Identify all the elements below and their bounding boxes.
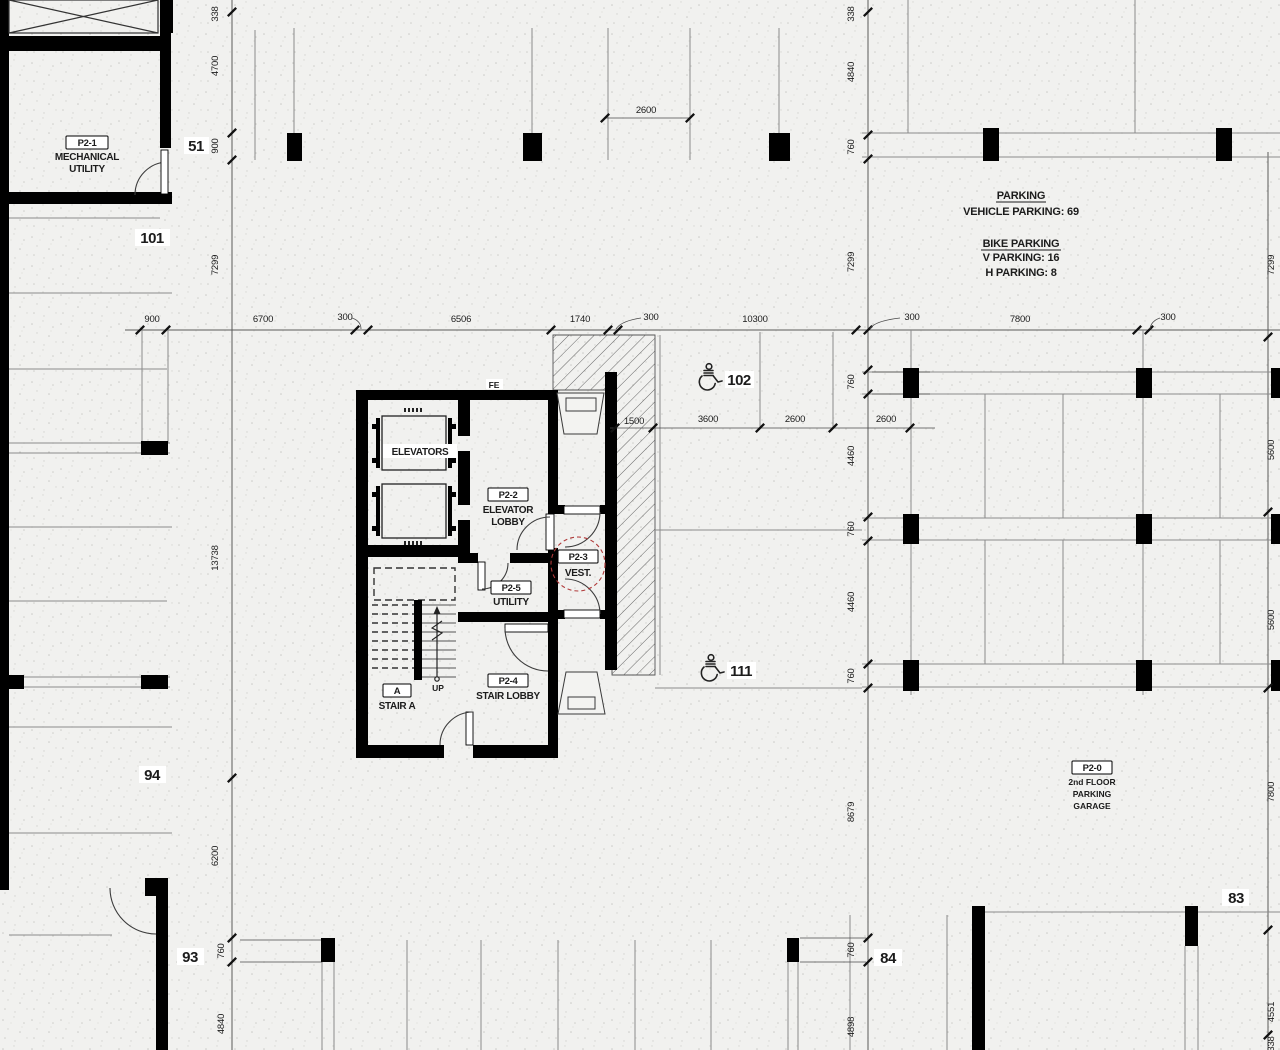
space-111: 111 — [730, 663, 752, 680]
garage-line1: 2nd FLOOR — [1068, 777, 1115, 787]
room-tag-p2-5: P2-5 — [502, 583, 522, 594]
dim-300-c: 300 — [904, 312, 919, 323]
dim-r-338: 338 — [1266, 1036, 1277, 1050]
dim-r-5600b: 5600 — [1266, 610, 1277, 630]
room-tag-p2-3: P2-3 — [569, 552, 588, 563]
dim-3600: 3600 — [698, 414, 718, 425]
dim-l-760: 760 — [216, 943, 227, 958]
dim-m-4460a: 4460 — [846, 446, 857, 466]
dim-l-338: 338 — [210, 6, 221, 21]
dim-l-900: 900 — [210, 138, 221, 153]
room-name-vest: VEST. — [565, 568, 592, 579]
dim-m-4840: 4840 — [846, 62, 857, 82]
up-label: UP — [432, 683, 444, 693]
room-label-elevators: ELEVATORS — [383, 444, 457, 458]
dim-r-7299: 7299 — [1266, 255, 1277, 275]
dim-l-4700: 4700 — [210, 56, 221, 76]
v-parking-count: V PARKING: 16 — [983, 252, 1060, 264]
space-102: 102 — [727, 372, 751, 389]
floor-plan-drawing: 900 6700 300 6506 1740 300 10300 300 780… — [0, 0, 1280, 1050]
room-tag-p2-4: P2-4 — [499, 676, 519, 687]
dim-2600-a: 2600 — [785, 414, 805, 425]
garage-line3: GARAGE — [1073, 801, 1111, 811]
dim-6506: 6506 — [451, 314, 471, 325]
room-tag-p2-1: P2-1 — [78, 138, 98, 149]
room-name-stair-a: STAIR A — [379, 701, 416, 712]
dim-6700: 6700 — [253, 314, 273, 325]
floor-plan-canvas: 900 6700 300 6506 1740 300 10300 300 780… — [0, 0, 1280, 1050]
dim-10300: 10300 — [742, 314, 767, 325]
dim-r-5600a: 5600 — [1266, 440, 1277, 460]
h-parking-count: H PARKING: 8 — [985, 267, 1056, 279]
dim-7800: 7800 — [1010, 314, 1030, 325]
room-name-lobby: LOBBY — [491, 517, 525, 528]
dim-900: 900 — [144, 314, 159, 325]
dim-m-8679: 8679 — [846, 802, 857, 822]
vehicle-parking-count: VEHICLE PARKING: 69 — [963, 206, 1079, 218]
room-tag-p2-0: P2-0 — [1083, 763, 1102, 774]
elevators-label: ELEVATORS — [392, 447, 449, 458]
fe-label-group: FE — [486, 379, 503, 390]
dim-m-760e: 760 — [846, 942, 857, 957]
dim-l-13738: 13738 — [210, 545, 221, 570]
dim-1740: 1740 — [570, 314, 590, 325]
dim-300-d: 300 — [1160, 312, 1175, 323]
room-label-utility5: P2-5 UTILITY — [491, 581, 531, 608]
bike-parking-title: BIKE PARKING — [983, 238, 1060, 250]
dim-2600-b: 2600 — [876, 414, 896, 425]
room-name-utility5: UTILITY — [493, 597, 529, 608]
space-51: 51 — [188, 138, 204, 155]
dim-m-760b: 760 — [846, 374, 857, 389]
dim-l-7299: 7299 — [210, 255, 221, 275]
room-name-stairlobby: STAIR LOBBY — [476, 691, 540, 702]
dim-r-4551: 4551 — [1266, 1002, 1277, 1022]
dim-1500: 1500 — [624, 416, 644, 427]
dim-m-4460b: 4460 — [846, 592, 857, 612]
dim-300-a: 300 — [337, 312, 352, 323]
room-label-garage: P2-0 2nd FLOOR PARKING GARAGE — [1068, 761, 1115, 811]
dim-r-7800: 7800 — [1266, 782, 1277, 802]
dim-m-760d: 760 — [846, 668, 857, 683]
dim-300-b: 300 — [643, 312, 658, 323]
room-name-mechanical: MECHANICAL — [55, 152, 119, 163]
space-93: 93 — [182, 949, 198, 966]
parking-title: PARKING — [997, 190, 1046, 202]
dim-m-760c: 760 — [846, 521, 857, 536]
dim-m-760a: 760 — [846, 139, 857, 154]
room-tag-p2-2: P2-2 — [499, 490, 518, 501]
fe-label: FE — [489, 380, 500, 390]
space-94: 94 — [144, 767, 161, 784]
room-name-utility: UTILITY — [69, 164, 105, 175]
space-101: 101 — [140, 230, 164, 247]
dim-top-2600: 2600 — [636, 105, 656, 116]
dim-m-4898: 4898 — [846, 1017, 857, 1037]
room-name-elevator: ELEVATOR — [483, 505, 534, 516]
room-tag-a: A — [394, 686, 401, 697]
dim-m-7299: 7299 — [846, 252, 857, 272]
dim-m-338: 338 — [846, 6, 857, 21]
dim-l-6200: 6200 — [210, 846, 221, 866]
space-84: 84 — [880, 950, 897, 967]
space-83: 83 — [1228, 890, 1244, 907]
garage-line2: PARKING — [1073, 789, 1112, 799]
dim-l-4840: 4840 — [216, 1014, 227, 1034]
